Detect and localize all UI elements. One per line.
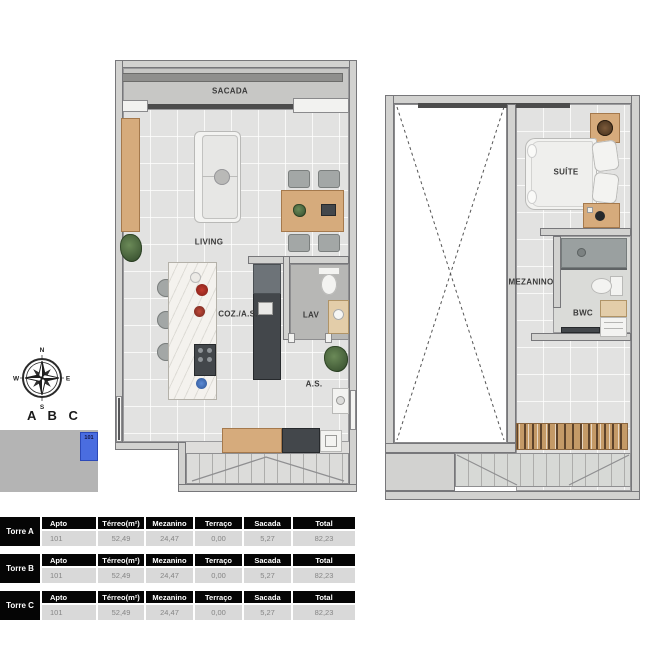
shower-drain <box>577 248 586 257</box>
compass-n: N <box>40 347 45 354</box>
sideboard <box>121 118 140 232</box>
table-header: Apto <box>42 591 96 603</box>
table-header: Terraço <box>195 554 242 566</box>
wall-bottom-left <box>115 442 186 450</box>
wall-bwc-left <box>553 236 561 308</box>
entry-sink <box>320 430 342 452</box>
table-header: Térreo(m²) <box>98 517 144 529</box>
wall-bottom <box>385 491 640 500</box>
table-header: Apto <box>42 517 96 529</box>
window-right <box>350 390 356 430</box>
shower-glass <box>561 268 627 270</box>
table-header: Mezanino <box>146 591 193 603</box>
dining-table <box>281 190 344 232</box>
sofa-pillow <box>214 169 230 185</box>
label-cozinha: COZ./A.S. <box>218 310 258 319</box>
wall-top <box>115 60 357 68</box>
lav-sink <box>333 309 344 320</box>
sink-bowl <box>196 378 207 389</box>
entry-counter-dark <box>282 428 320 453</box>
tower-letters-label: A B C <box>27 408 82 423</box>
label-area-servico: A.S. <box>306 380 323 389</box>
label-suite: SUÍTE <box>553 168 578 177</box>
blanket-roll <box>527 190 537 204</box>
bwc-vanity <box>600 300 627 317</box>
dining-chair <box>288 234 310 252</box>
tower-name-cell: Torre B <box>0 554 40 583</box>
area-table-torre-a: Torre A Apto Térreo(m²) Mezanino Terraço… <box>0 517 355 546</box>
compass-w: W <box>13 376 20 383</box>
table-tray <box>321 204 336 216</box>
area-table-torre-b: Torre B Apto Térreo(m²) Mezanino Terraço… <box>0 554 355 583</box>
wall-suite-bwc <box>540 228 631 236</box>
pillow <box>591 172 619 205</box>
table-cell: 82,23 <box>293 568 355 583</box>
table-cell: 24,47 <box>146 605 193 620</box>
table-header: Térreo(m²) <box>98 554 144 566</box>
table-header: Total <box>293 554 355 566</box>
table-cell: 0,00 <box>195 568 242 583</box>
table-cell: 101 <box>42 605 96 620</box>
compass-e: E <box>66 376 71 383</box>
table-header: Sacada <box>244 517 291 529</box>
floorplan-ground: SACADA LIVING COZ./A.S. LAV A.S. <box>115 60 357 492</box>
refrigerator <box>253 264 281 294</box>
pillow <box>591 139 620 172</box>
table-cell: 101 <box>42 568 96 583</box>
kitchen-island <box>168 262 217 400</box>
table-cell: 52,49 <box>98 531 144 546</box>
table-cell: 24,47 <box>146 568 193 583</box>
label-lavabo: LAV <box>303 311 319 320</box>
table-cell: 52,49 <box>98 605 144 620</box>
table-cell: 5,27 <box>244 568 291 583</box>
dining-chair <box>318 170 340 188</box>
table-header: Terraço <box>195 591 242 603</box>
bwc-toilet <box>591 278 612 294</box>
area-table-torre-c: Torre C Apto Térreo(m²) Mezanino Terraço… <box>0 591 355 620</box>
compass-rose: N E S W <box>13 345 71 411</box>
tower-name-cell: Torre C <box>0 591 40 620</box>
wall-block-bottom-left <box>385 453 455 491</box>
lav-door-jamb-left <box>288 333 295 343</box>
wall-stub-right <box>293 98 349 113</box>
window-left-glass <box>118 398 120 440</box>
fruit-bowl <box>196 284 208 296</box>
dining-chair <box>318 234 340 252</box>
kitchen-cabinet-column <box>253 264 281 380</box>
stairs-ground-lines <box>186 453 349 484</box>
plant-as <box>324 346 348 372</box>
wall-stairwell-bottom <box>178 484 357 492</box>
wall-stub-left <box>122 100 148 112</box>
wall-void-divider <box>507 104 516 443</box>
lav-door-jamb-right <box>325 333 332 343</box>
table-cell: 101 <box>42 531 96 546</box>
dining-chair <box>288 170 310 188</box>
plate <box>190 272 201 283</box>
table-header: Sacada <box>244 554 291 566</box>
void-x-lines <box>394 104 507 443</box>
lav-vanity <box>328 300 349 334</box>
label-bwc: BWC <box>573 309 593 318</box>
table-header: Mezanino <box>146 554 193 566</box>
table-cell: 0,00 <box>195 605 242 620</box>
label-sacada: SACADA <box>212 87 248 96</box>
table-header: Total <box>293 591 355 603</box>
wall-under-void <box>385 443 516 453</box>
wall-right <box>631 95 640 500</box>
balcony-rail <box>122 73 343 82</box>
entry-cabinet-wood <box>222 428 282 453</box>
shower <box>561 238 627 268</box>
wardrobe <box>516 423 628 450</box>
table-header: Total <box>293 517 355 529</box>
sofa <box>194 131 241 223</box>
void-lintel <box>418 103 570 108</box>
plant-living <box>120 234 142 262</box>
table-header: Apto <box>42 554 96 566</box>
table-cell: 82,23 <box>293 531 355 546</box>
bwc-cabinet <box>600 317 627 337</box>
fruit-bowl <box>194 306 205 317</box>
floorplan-mezzanine: SUÍTE MEZANINO BWC <box>385 95 640 500</box>
table-cell: 5,27 <box>244 531 291 546</box>
wall-left <box>385 95 394 500</box>
table-cell: 52,49 <box>98 568 144 583</box>
table-cell: 24,47 <box>146 531 193 546</box>
label-mezanino: MEZANINO <box>508 278 553 287</box>
table-header: Mezanino <box>146 517 193 529</box>
table-cell: 82,23 <box>293 605 355 620</box>
label-living: LIVING <box>195 238 223 247</box>
table-header: Sacada <box>244 591 291 603</box>
suite-nightstand <box>583 203 620 228</box>
balcony-sliding-door <box>148 104 293 109</box>
floorplan-sheet: SACADA LIVING COZ./A.S. LAV A.S. <box>0 0 665 665</box>
tower-name-cell: Torre A <box>0 517 40 546</box>
table-plant <box>293 204 306 217</box>
oven-door <box>258 302 273 315</box>
table-header: Térreo(m²) <box>98 591 144 603</box>
wall-kitchen-lav <box>248 256 349 264</box>
blanket-roll <box>527 144 537 158</box>
unit-101-marker: 101 <box>80 432 98 461</box>
wall-lav-divider <box>283 256 290 340</box>
bwc-bench <box>561 327 600 333</box>
stairs-mezzanine-lines <box>455 453 631 487</box>
washing-machine <box>332 388 349 414</box>
table-header: Terraço <box>195 517 242 529</box>
cooktop <box>194 344 216 376</box>
lav-toilet <box>321 274 337 295</box>
table-cell: 0,00 <box>195 531 242 546</box>
table-cell: 5,27 <box>244 605 291 620</box>
